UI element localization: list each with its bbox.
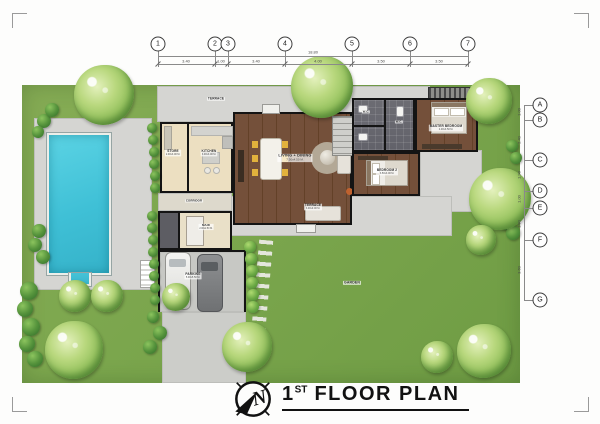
tv-console (238, 150, 244, 182)
stool (204, 167, 211, 174)
room-store-kitchen (160, 122, 233, 193)
bush (244, 241, 256, 253)
sink (396, 106, 404, 117)
fridge (222, 136, 233, 149)
shrub (147, 311, 159, 323)
label-terrace-south: TERRACE3.00x9.00 M. (304, 204, 322, 211)
label-maid: MAID2.00x2.50 M. (198, 224, 213, 230)
right-dim-5: 1.90 (517, 220, 522, 228)
drawing-title: 1ST FLOOR PLAN (282, 383, 469, 411)
terrace-steps (296, 224, 316, 233)
right-dim-1: 1.00 (517, 108, 522, 116)
label-kitchen: KITCHEN3.00x3.00 M. (201, 150, 218, 157)
right-dim-3: 1.90 (517, 171, 522, 179)
crop-mark-bottom-left (12, 397, 27, 412)
grid-bubble-1: 1 (151, 37, 166, 52)
grid-bubble-7: 7 (461, 37, 476, 52)
bush (247, 301, 259, 313)
wardrobe (422, 144, 462, 149)
label-wc-1: W.C. (362, 110, 370, 113)
label-parking: PARKING5.00x5.50 M. (184, 273, 201, 280)
label-bedroom-2: BEDROOM 23.50x3.00 M. (376, 169, 398, 176)
entry-steps (262, 104, 280, 114)
title-ordinal: ST (295, 384, 308, 395)
swimming-pool (47, 133, 111, 275)
crop-mark-bottom-right (574, 397, 589, 412)
toilet (358, 133, 368, 141)
top-dim-6: 3.50 (435, 59, 443, 64)
shrub (510, 152, 522, 164)
grid-bubble-F: F (533, 233, 548, 248)
bush (246, 265, 258, 277)
label-master-bedroom: MASTER BEDROOM4.00x3.50 M. (429, 125, 463, 132)
shrub (32, 126, 44, 138)
bathroom-wall (384, 100, 386, 150)
label-garden: GARDEN (343, 281, 361, 285)
top-dim-1: 3.40 (182, 59, 190, 64)
grid-bubble-4: 4 (278, 37, 293, 52)
title-number: 1 (282, 383, 295, 405)
dining-chair (282, 141, 288, 148)
right-dim-4: 1.00 (517, 195, 522, 203)
tree (469, 168, 531, 230)
car-gray (197, 254, 223, 312)
top-dim-4: 4.00 (314, 59, 322, 64)
label-living-dining: LIVING + DINING7.50x4.50 M. (277, 154, 312, 162)
top-dim-3: 3.40 (252, 59, 260, 64)
wardrobe (358, 156, 388, 160)
title-text: FLOOR PLAN (314, 383, 459, 405)
bush (247, 289, 259, 301)
grid-bubble-3: 3 (221, 37, 236, 52)
dining-chair (252, 169, 258, 176)
maid-wall (178, 213, 180, 248)
floor-plan-page: 1 2 3 4 5 6 7 18.80 3.40 1.00 3.40 4.00 … (0, 0, 600, 424)
pillow (434, 108, 449, 116)
kitchen-counter (191, 126, 233, 136)
windshield (169, 259, 186, 267)
top-overall-dim-line (158, 56, 468, 57)
grid-bubble-6: 6 (403, 37, 418, 52)
grid-bubble-A: A (533, 98, 548, 113)
top-dim-2: 1.00 (217, 59, 225, 64)
grid-bubble-D: D (533, 184, 548, 199)
bush (246, 277, 258, 289)
dining-chair (252, 155, 258, 162)
crop-mark-top-right (574, 13, 589, 28)
north-compass-icon: N (228, 374, 278, 424)
label-corridor: CORRIDOR (185, 199, 203, 202)
dining-chair (282, 169, 288, 176)
stool (213, 167, 220, 174)
top-dim-5: 3.50 (377, 59, 385, 64)
store-kitchen-wall (187, 124, 189, 191)
crop-mark-top-left (12, 13, 27, 28)
headboard (367, 161, 371, 185)
label-wc-2: W.C. (395, 120, 403, 123)
store-shelf (164, 126, 172, 150)
right-dim-2: 2.40 (517, 136, 522, 144)
headboard (432, 103, 466, 107)
room-maid-block (158, 211, 232, 250)
grid-bubble-E: E (533, 201, 548, 216)
staircase (332, 116, 354, 156)
dining-chair (252, 141, 258, 148)
label-terrace-top: TERRACE (207, 97, 225, 101)
grid-bubble-C: C (533, 153, 548, 168)
label-store: STORE2.00x3.00 M. (165, 150, 181, 157)
bathroom-wall (354, 125, 384, 127)
pillow (450, 108, 465, 116)
grid-bubble-G: G (533, 293, 548, 308)
right-dim-6: 3.60 (517, 266, 522, 274)
bed-maid (186, 216, 204, 246)
pillow (372, 174, 380, 185)
right-dim-line (524, 105, 525, 300)
maid-wc (160, 213, 178, 248)
windshield (201, 262, 218, 271)
grid-bubble-B: B (533, 113, 548, 128)
room-living-dining (233, 112, 352, 225)
top-overall-dim: 18.80 (308, 50, 318, 55)
bush (245, 253, 257, 265)
top-segment-dim-line (158, 64, 468, 65)
grid-bubble-5: 5 (345, 37, 360, 52)
room-bathrooms (352, 98, 415, 152)
